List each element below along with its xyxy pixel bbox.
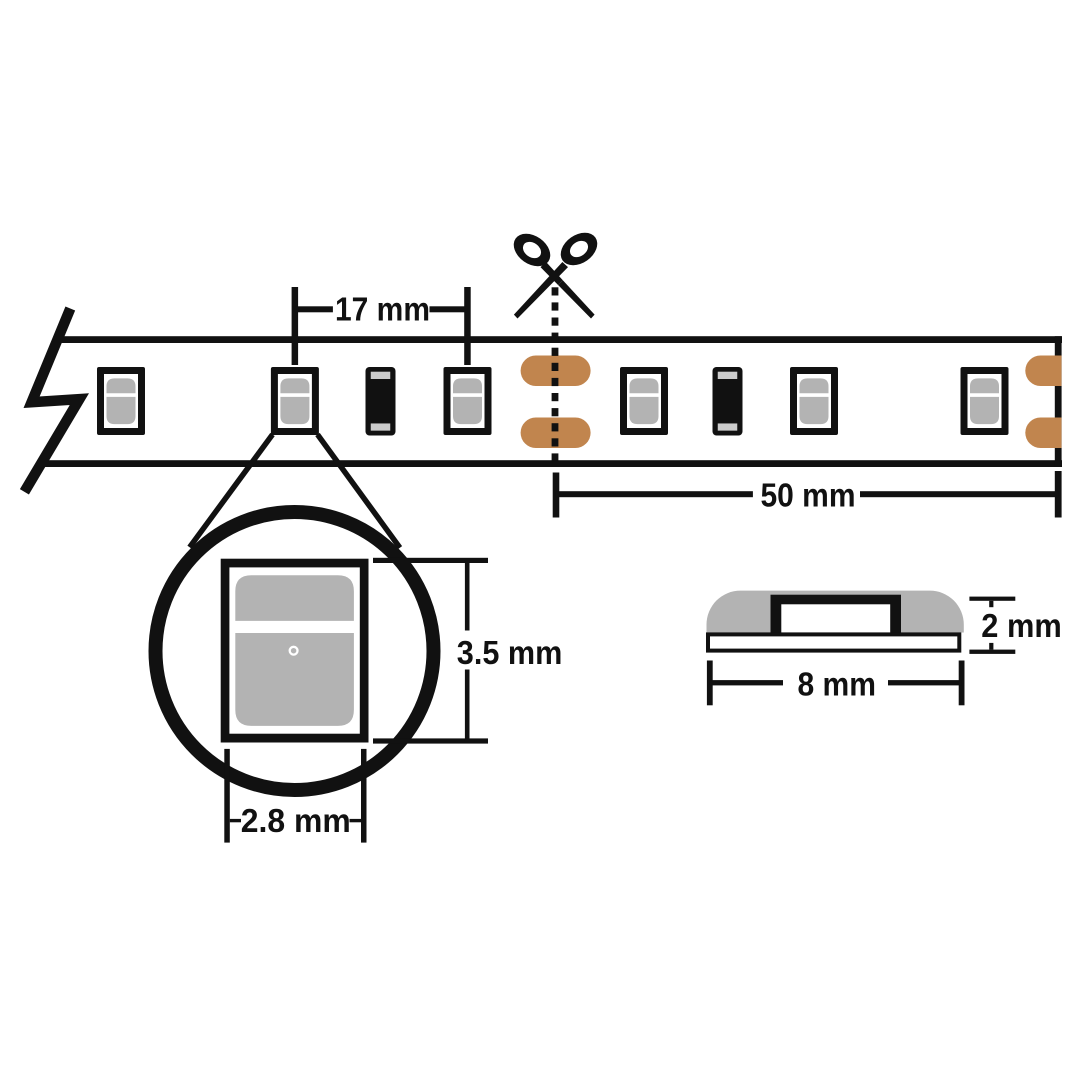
svg-text:8 mm: 8 mm (798, 666, 877, 703)
svg-text:3.5 mm: 3.5 mm (457, 634, 563, 671)
svg-text:17 mm: 17 mm (335, 290, 430, 327)
svg-text:50 mm: 50 mm (761, 477, 856, 514)
svg-text:2 mm: 2 mm (981, 607, 1062, 644)
svg-text:2.8 mm: 2.8 mm (241, 802, 351, 839)
